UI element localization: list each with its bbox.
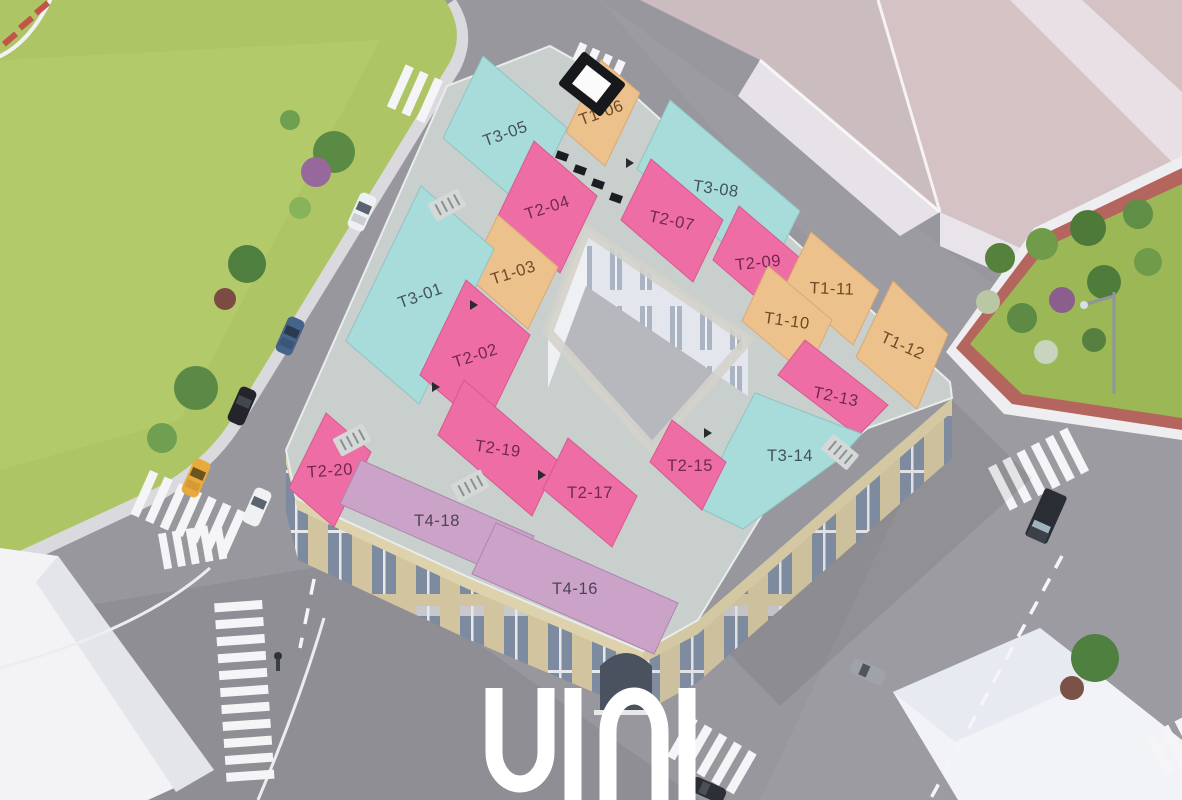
tree — [289, 197, 311, 219]
tree — [280, 110, 300, 130]
lilac-bush — [1049, 287, 1075, 313]
unit-label: T2-15 — [667, 457, 713, 475]
flower-bush — [976, 290, 1000, 314]
unit-label: T4-18 — [414, 512, 460, 530]
tree — [1070, 210, 1106, 246]
tree — [1007, 303, 1037, 333]
tree — [1071, 634, 1119, 682]
tree — [1026, 228, 1058, 260]
unit-label: T4-16 — [552, 580, 598, 598]
tree — [985, 243, 1015, 273]
red-bush — [214, 288, 236, 310]
tree — [1134, 248, 1162, 276]
lilac-bush — [301, 157, 331, 187]
tree — [174, 366, 218, 410]
masterplan-scene: T3-05 T1-06 T3-08 T2-04 T2-07 T2-09 T1-1… — [0, 0, 1182, 800]
unit-label: T2-20 — [306, 460, 353, 481]
tree — [147, 423, 177, 453]
tree — [1087, 265, 1121, 299]
tree — [1123, 199, 1153, 229]
unit-label: T2-17 — [567, 484, 613, 502]
unit-label: T3-14 — [767, 447, 813, 465]
red-bush — [1060, 676, 1084, 700]
tree — [228, 245, 266, 283]
flower-bush — [1034, 340, 1058, 364]
tree — [1082, 328, 1106, 352]
unit-label: T1-11 — [809, 279, 854, 299]
